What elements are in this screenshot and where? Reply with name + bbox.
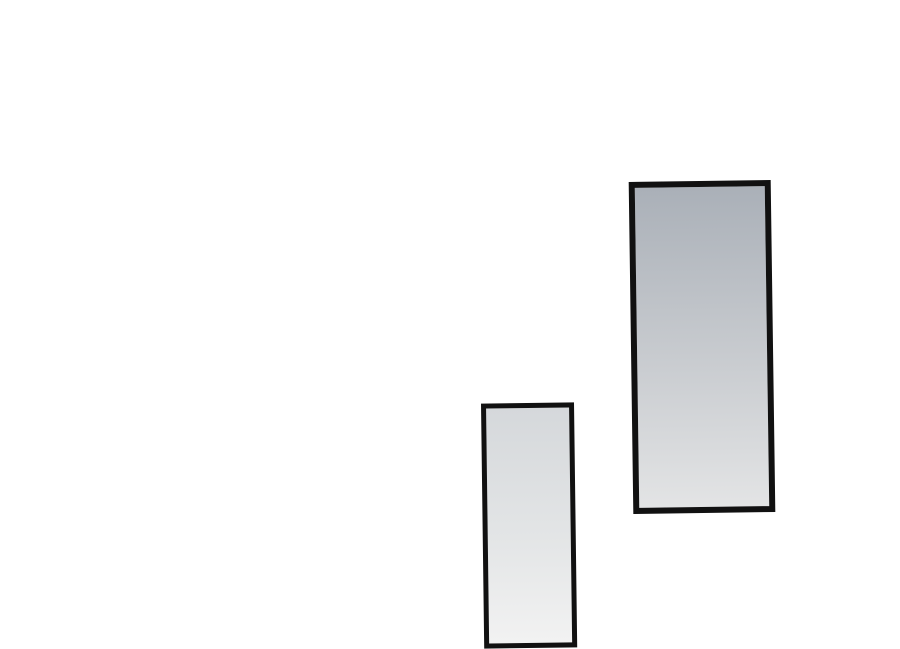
comic-panel-small [481,402,577,648]
comic-panel-large [629,180,776,514]
comic-page [0,0,900,600]
